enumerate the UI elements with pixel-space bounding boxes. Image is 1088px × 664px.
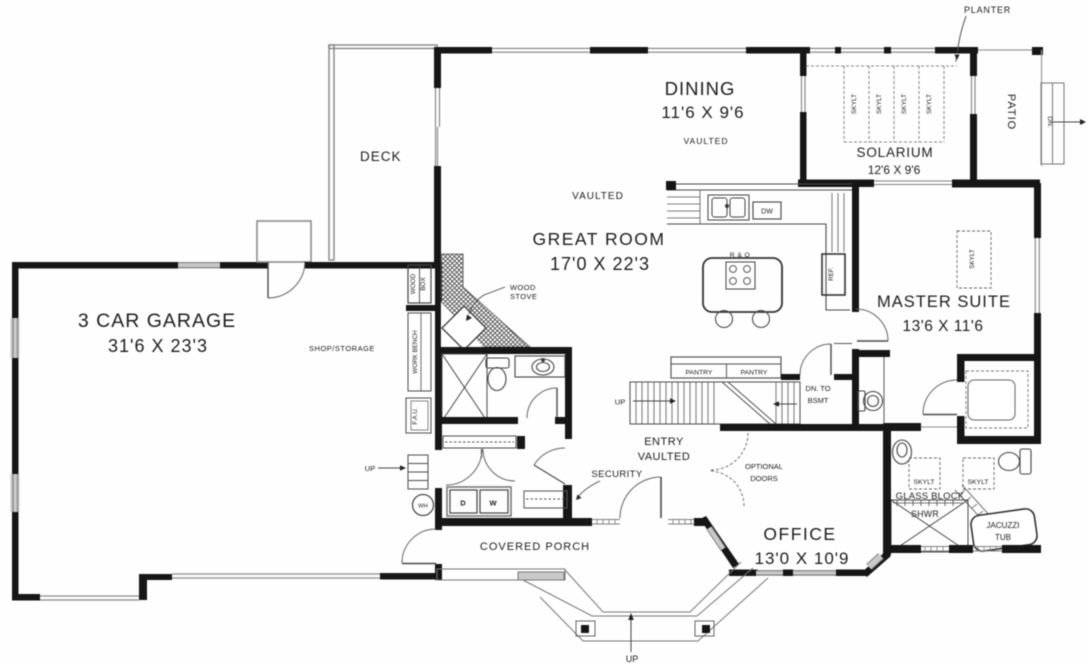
svg-text:PLANTER: PLANTER — [964, 5, 1011, 15]
svg-text:SKYLT: SKYLT — [851, 94, 858, 114]
svg-text:OPTIONAL: OPTIONAL — [745, 462, 783, 471]
svg-text:UP: UP — [365, 464, 375, 473]
svg-text:DOORS: DOORS — [750, 474, 778, 483]
svg-text:COVERED PORCH: COVERED PORCH — [480, 541, 590, 553]
svg-text:OFFICE: OFFICE — [763, 524, 836, 544]
svg-text:DINING: DINING — [665, 78, 736, 99]
svg-text:SKYLT: SKYLT — [876, 94, 883, 114]
svg-text:ENTRY: ENTRY — [644, 436, 684, 448]
svg-text:VAULTED: VAULTED — [572, 191, 624, 202]
svg-text:WOOD: WOOD — [510, 283, 536, 292]
svg-text:13'6 X 11'6: 13'6 X 11'6 — [903, 318, 984, 335]
svg-text:SKYLT: SKYLT — [901, 94, 908, 114]
svg-text:31'6 X 23'3: 31'6 X 23'3 — [108, 336, 208, 356]
svg-text:D: D — [460, 499, 466, 508]
svg-text:DN.: DN. — [1046, 116, 1053, 127]
svg-text:F.A.U.: F.A.U. — [412, 407, 419, 424]
svg-text:SKYLT: SKYLT — [967, 479, 988, 486]
svg-text:MASTER SUITE: MASTER SUITE — [877, 293, 1011, 311]
svg-text:STOVE: STOVE — [510, 292, 537, 301]
svg-text:SHOP/STORAGE: SHOP/STORAGE — [309, 344, 375, 353]
svg-text:UP: UP — [626, 654, 639, 664]
svg-text:JACUZZI: JACUZZI — [987, 521, 1020, 530]
svg-text:UP: UP — [615, 398, 625, 407]
svg-text:R & O: R & O — [730, 252, 751, 259]
svg-text:DN. TO: DN. TO — [805, 384, 830, 393]
svg-text:W: W — [489, 499, 497, 508]
svg-text:WORK BENCH: WORK BENCH — [412, 330, 419, 374]
svg-text:BSMT: BSMT — [808, 396, 829, 405]
svg-text:SHWR: SHWR — [911, 509, 939, 519]
svg-text:GREAT ROOM: GREAT ROOM — [533, 229, 666, 249]
svg-text:DW: DW — [761, 209, 773, 216]
svg-text:BOX: BOX — [420, 277, 427, 291]
svg-text:PATIO: PATIO — [1005, 94, 1017, 130]
svg-text:SKYLT: SKYLT — [926, 94, 933, 114]
svg-text:SKYLT: SKYLT — [969, 249, 976, 269]
svg-text:DECK: DECK — [360, 149, 402, 164]
svg-text:17'0 X 22'3: 17'0 X 22'3 — [550, 254, 650, 274]
svg-text:WOOD: WOOD — [410, 273, 417, 294]
svg-text:VAULTED: VAULTED — [684, 136, 729, 146]
svg-text:SOLARIUM: SOLARIUM — [857, 145, 934, 160]
svg-text:13'0 X 10'9: 13'0 X 10'9 — [754, 549, 849, 568]
svg-text:PANTRY: PANTRY — [741, 370, 768, 377]
svg-text:VAULTED: VAULTED — [638, 451, 691, 463]
svg-text:3 CAR GARAGE: 3 CAR GARAGE — [78, 310, 236, 332]
svg-text:12'6 X 9'6: 12'6 X 9'6 — [868, 163, 921, 177]
svg-text:SECURITY: SECURITY — [591, 469, 642, 480]
svg-text:REF.: REF. — [828, 267, 835, 281]
svg-text:SKYLT: SKYLT — [913, 479, 934, 486]
svg-text:TUB: TUB — [995, 533, 1011, 542]
svg-text:11'6 X 9'6: 11'6 X 9'6 — [661, 103, 744, 122]
svg-text:WH: WH — [418, 504, 428, 510]
svg-text:PANTRY: PANTRY — [686, 370, 713, 377]
